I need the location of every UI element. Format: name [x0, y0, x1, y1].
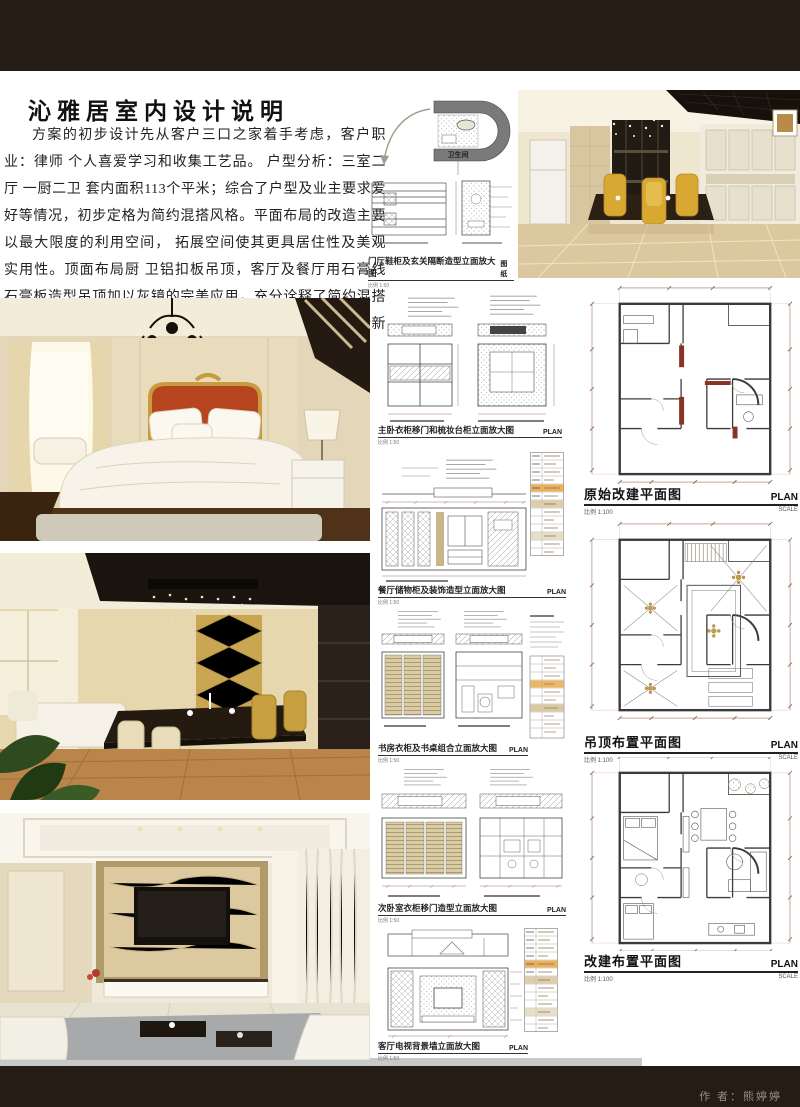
elev-e-scale: 比例 1:50 — [378, 1055, 566, 1062]
elev-a-title: 主卧衣柜移门和梳妆台柜立面放大图 — [378, 424, 514, 436]
elevation-second-bedroom-wardrobe: 次卧室衣柜移门造型立面放大图 PLAN 比例 1:50 — [378, 768, 566, 924]
elevation-dining-cabinet: 餐厅储物柜及装饰造型立面放大图 PLAN 比例 1:50 — [378, 450, 566, 606]
entry-detail-svg: 卫生间 — [368, 95, 514, 255]
plan-furniture: 改建布置平面图 PLAN 比例 1:100 SCALE — [584, 757, 798, 973]
top-bar — [0, 0, 800, 71]
elev-b-title: 餐厅储物柜及装饰造型立面放大图 — [378, 584, 506, 596]
entry-detail-title: 门厅鞋柜及玄关隔断造型立面放大图 — [368, 255, 500, 279]
entry-detail-scale: 比例 1:50 — [368, 282, 514, 289]
elev-c-caption: 书房衣柜及书桌组合立面放大图 PLAN — [378, 742, 528, 756]
plan3-scale-label: SCALE — [778, 974, 798, 983]
author-credit: 作 者：熊婷婷 — [699, 1088, 782, 1104]
elevation-study-wardrobe: 书房衣柜及书桌组合立面放大图 PLAN 比例 1:50 — [378, 610, 566, 764]
elevation-master-wardrobe: 主卧衣柜移门和梳妆台柜立面放大图 PLAN 比例 1:50 — [378, 294, 562, 446]
elevation-tv-background-wall: 客厅电视背景墙立面放大图 PLAN 比例 1:50 — [378, 928, 566, 1062]
plan2-caption: 吊顶布置平面图 PLAN — [584, 732, 798, 754]
entry-cabinet-detail-drawing: 卫生间 — [368, 95, 514, 283]
elev-c-title: 书房衣柜及书桌组合立面放大图 — [378, 742, 497, 754]
elev-e-title: 客厅电视背景墙立面放大图 — [378, 1040, 480, 1052]
elev-c-sheet: PLAN — [509, 747, 528, 754]
elev-a-caption: 主卧衣柜移门和梳妆台柜立面放大图 PLAN — [378, 424, 562, 438]
plan2-sheet: PLAN — [771, 740, 798, 751]
elev-e-sheet: PLAN — [509, 1045, 528, 1052]
svg-text:卫生间: 卫生间 — [448, 150, 469, 159]
plan-original: 原始改建平面图 PLAN 比例 1:100 SCALE — [584, 286, 798, 506]
plan3-sheet: PLAN — [771, 959, 798, 970]
elev-d-caption: 次卧室衣柜移门造型立面放大图 PLAN — [378, 902, 566, 916]
plan3-sub: 比例 1:100 SCALE — [584, 974, 798, 983]
elev-e-caption: 客厅电视背景墙立面放大图 PLAN — [378, 1040, 528, 1054]
plan3-caption: 改建布置平面图 PLAN — [584, 951, 798, 973]
bottom-bar: 作 者：熊婷婷 — [0, 1066, 800, 1107]
elev-d-sheet: PLAN — [547, 907, 566, 914]
plan1-title: 原始改建平面图 — [584, 484, 682, 503]
plan2-title: 吊顶布置平面图 — [584, 732, 682, 751]
elev-b-caption: 餐厅储物柜及装饰造型立面放大图 PLAN — [378, 584, 566, 598]
entry-detail-caption: 门厅鞋柜及玄关隔断造型立面放大图 图纸 — [368, 255, 514, 281]
photo-living-tv-wall — [0, 813, 370, 1060]
elev-d-title: 次卧室衣柜移门造型立面放大图 — [378, 902, 497, 914]
elev-c-scale: 比例 1:50 — [378, 757, 566, 764]
plan3-scale: 比例 1:100 — [584, 974, 613, 983]
elev-b-sheet: PLAN — [547, 589, 566, 596]
design-poster: 作 者：熊婷婷 沁雅居室内设计说明 方案的初步设计先从客户三口之家着手考虑，客户… — [0, 0, 800, 1107]
elev-b-scale: 比例 1:50 — [378, 599, 566, 606]
elev-d-scale: 比例 1:50 — [378, 917, 566, 924]
entry-detail-sheet: 图纸 — [500, 259, 514, 279]
photo-living-dining — [0, 553, 370, 800]
plan3-title: 改建布置平面图 — [584, 951, 682, 970]
photo-dining-kitchen — [518, 90, 800, 278]
plan1-caption: 原始改建平面图 PLAN — [584, 484, 798, 506]
photo-master-bedroom — [0, 298, 370, 541]
page-title: 沁雅居室内设计说明 — [28, 92, 289, 126]
plan1-sheet: PLAN — [771, 492, 798, 503]
elev-a-scale: 比例 1:50 — [378, 439, 562, 446]
elev-a-sheet: PLAN — [543, 429, 562, 436]
plan-ceiling: 吊顶布置平面图 PLAN 比例 1:100 SCALE — [584, 510, 798, 754]
